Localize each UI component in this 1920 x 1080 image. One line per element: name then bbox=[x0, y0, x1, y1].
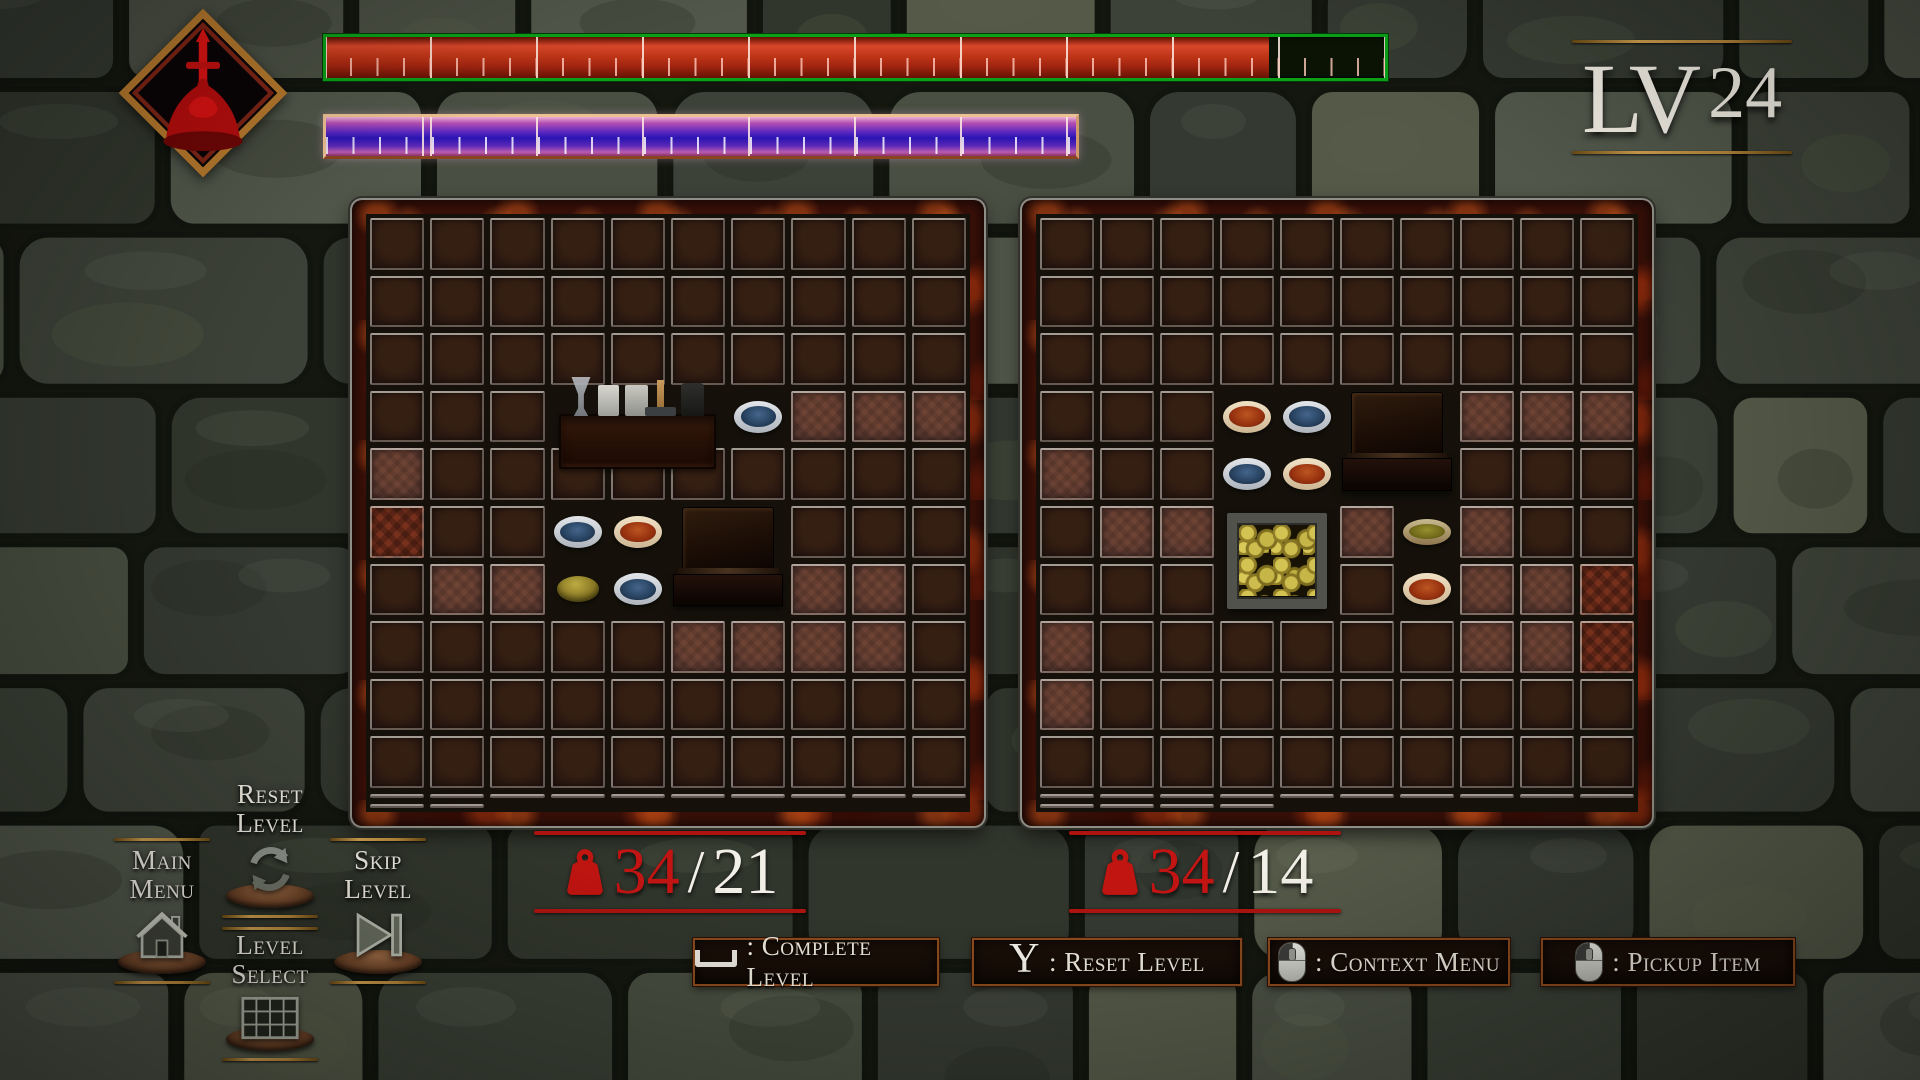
grid-cell[interactable] bbox=[1340, 218, 1394, 270]
grid-cell[interactable] bbox=[611, 736, 665, 788]
grid-cell[interactable] bbox=[1580, 448, 1634, 500]
grid-cell[interactable] bbox=[1040, 218, 1094, 270]
grid-cell[interactable] bbox=[1340, 794, 1394, 798]
skip-level-button[interactable]: Skip Level bbox=[322, 838, 434, 984]
grid-cell[interactable] bbox=[1340, 276, 1394, 328]
grid-cell[interactable] bbox=[1280, 333, 1334, 385]
grid-cell[interactable] bbox=[1580, 679, 1634, 731]
hint-label: : Reset Level bbox=[1049, 947, 1205, 978]
grid-cell[interactable] bbox=[852, 448, 906, 500]
grid-cell[interactable] bbox=[370, 804, 424, 808]
grid-cell[interactable] bbox=[1100, 794, 1154, 798]
grid-cell[interactable] bbox=[1040, 276, 1094, 328]
grid-cell[interactable] bbox=[1520, 391, 1574, 443]
grid-cell[interactable] bbox=[1160, 218, 1214, 270]
grid-cell[interactable] bbox=[1400, 679, 1454, 731]
grid-cell[interactable] bbox=[370, 794, 424, 798]
reset-level-label-line2: Level bbox=[236, 809, 304, 838]
grid-cell[interactable] bbox=[1280, 218, 1334, 270]
grid-cell[interactable] bbox=[1340, 679, 1394, 731]
grid-cell[interactable] bbox=[1160, 564, 1214, 616]
health-bar-minor-ticks bbox=[326, 58, 1385, 76]
grid-cell[interactable] bbox=[490, 506, 544, 558]
grid-cell[interactable] bbox=[912, 391, 966, 443]
grid-cell[interactable] bbox=[1460, 506, 1514, 558]
grid-cell[interactable] bbox=[852, 621, 906, 673]
grid-cell[interactable] bbox=[791, 333, 845, 385]
game-screen: LV 24 34 / 21 34 / 14 bbox=[0, 0, 1920, 1080]
grid-cell[interactable] bbox=[1460, 736, 1514, 788]
hint-complete-level: : Complete Level bbox=[693, 938, 939, 986]
grid-cell[interactable] bbox=[1160, 736, 1214, 788]
grid-cell[interactable] bbox=[1460, 679, 1514, 731]
grid-cell[interactable] bbox=[912, 794, 966, 798]
puzzle-grid-left bbox=[352, 200, 984, 826]
divider-line bbox=[534, 909, 806, 913]
y-key-icon: Y bbox=[1009, 938, 1040, 980]
grid-cell[interactable] bbox=[912, 679, 966, 731]
divider-line bbox=[330, 838, 426, 841]
grid-cell[interactable] bbox=[1160, 391, 1214, 443]
grid-cell[interactable] bbox=[490, 621, 544, 673]
grid-cell[interactable] bbox=[370, 333, 424, 385]
grid-cell[interactable] bbox=[731, 736, 785, 788]
grid-cell[interactable] bbox=[791, 564, 845, 616]
grid-cell[interactable] bbox=[731, 621, 785, 673]
grid-cell[interactable] bbox=[1460, 564, 1514, 616]
grid-cell[interactable] bbox=[370, 448, 424, 500]
hint-context-menu: : Context Menu bbox=[1268, 938, 1510, 986]
grid-cell[interactable] bbox=[791, 679, 845, 731]
level-select-button[interactable]: Level Select bbox=[214, 926, 326, 1061]
grid-cell[interactable] bbox=[1100, 333, 1154, 385]
skip-level-label-line2: Level bbox=[344, 875, 412, 904]
grid-cell[interactable] bbox=[370, 391, 424, 443]
grid-cell[interactable] bbox=[1400, 218, 1454, 270]
grid-cell[interactable] bbox=[1220, 804, 1274, 808]
grid-cell[interactable] bbox=[912, 448, 966, 500]
grid-cell[interactable] bbox=[1040, 736, 1094, 788]
grid-cell[interactable] bbox=[1160, 448, 1214, 500]
grid-cells bbox=[366, 214, 970, 812]
grid-cell[interactable] bbox=[912, 736, 966, 788]
item-chest[interactable] bbox=[1340, 391, 1454, 500]
grid-cell[interactable] bbox=[1160, 679, 1214, 731]
grid-cells bbox=[1036, 214, 1638, 812]
item-plate-red[interactable] bbox=[611, 506, 665, 558]
item-pile-gold[interactable] bbox=[551, 564, 605, 616]
grid-cell[interactable] bbox=[1100, 679, 1154, 731]
grid-cell[interactable] bbox=[611, 218, 665, 270]
grid-cell[interactable] bbox=[1580, 333, 1634, 385]
grid-cell[interactable] bbox=[671, 794, 725, 798]
magic-bar bbox=[323, 114, 1079, 159]
grid-cell[interactable] bbox=[791, 276, 845, 328]
divider-line bbox=[222, 915, 318, 918]
grid-cell[interactable] bbox=[1520, 276, 1574, 328]
grid-cell[interactable] bbox=[731, 679, 785, 731]
mouse-icon bbox=[1575, 942, 1603, 982]
grid-cell[interactable] bbox=[1340, 736, 1394, 788]
grid-cell[interactable] bbox=[912, 218, 966, 270]
item-plate-blue[interactable] bbox=[731, 391, 785, 443]
grid-cell[interactable] bbox=[1580, 621, 1634, 673]
item-plate-red[interactable] bbox=[1400, 564, 1454, 616]
grid-cell[interactable] bbox=[490, 276, 544, 328]
grid-cell[interactable] bbox=[1160, 506, 1214, 558]
grid-cell[interactable] bbox=[1580, 564, 1634, 616]
grid-cell[interactable] bbox=[1100, 506, 1154, 558]
grid-cell[interactable] bbox=[1340, 506, 1394, 558]
grid-cell[interactable] bbox=[611, 794, 665, 798]
grid-cell[interactable] bbox=[852, 218, 906, 270]
grid-cell[interactable] bbox=[1160, 276, 1214, 328]
grid-cell[interactable] bbox=[430, 448, 484, 500]
grid-cell[interactable] bbox=[791, 218, 845, 270]
grid-cell[interactable] bbox=[1040, 621, 1094, 673]
grid-cell[interactable] bbox=[1040, 804, 1094, 808]
grid-cell[interactable] bbox=[1100, 448, 1154, 500]
divider-line bbox=[114, 981, 210, 984]
reset-arrows-icon bbox=[241, 840, 299, 898]
grid-cell[interactable] bbox=[551, 794, 605, 798]
grid-cell[interactable] bbox=[551, 276, 605, 328]
grid-cell[interactable] bbox=[370, 218, 424, 270]
grid-cell[interactable] bbox=[1460, 621, 1514, 673]
item-pile-gold-bowl[interactable] bbox=[1400, 506, 1454, 558]
grid-cell[interactable] bbox=[490, 679, 544, 731]
grid-cell[interactable] bbox=[490, 736, 544, 788]
grid-cell[interactable] bbox=[1580, 506, 1634, 558]
grid-cell[interactable] bbox=[1280, 794, 1334, 798]
grid-cell[interactable] bbox=[1040, 679, 1094, 731]
grid-cell[interactable] bbox=[1520, 621, 1574, 673]
grid-cell[interactable] bbox=[671, 218, 725, 270]
item-chest[interactable] bbox=[671, 506, 785, 615]
grid-cell[interactable] bbox=[490, 448, 544, 500]
grid-cell[interactable] bbox=[1580, 736, 1634, 788]
grid-cell[interactable] bbox=[430, 506, 484, 558]
grid-cell[interactable] bbox=[1280, 679, 1334, 731]
grid-cell[interactable] bbox=[551, 621, 605, 673]
level-select-label-line2: Select bbox=[231, 960, 308, 989]
item-plate-red[interactable] bbox=[1220, 391, 1274, 443]
magic-bar-minor-ticks bbox=[326, 137, 1076, 154]
grid-cell[interactable] bbox=[731, 276, 785, 328]
grid-cell[interactable] bbox=[1280, 621, 1334, 673]
grid-cell[interactable] bbox=[912, 564, 966, 616]
divider-line bbox=[1069, 909, 1341, 913]
hint-label: : Complete Level bbox=[746, 931, 937, 993]
grid-cell[interactable] bbox=[1280, 736, 1334, 788]
grid-cell[interactable] bbox=[551, 736, 605, 788]
grid-cell[interactable] bbox=[430, 218, 484, 270]
grid-cell[interactable] bbox=[1400, 794, 1454, 798]
grid-cell[interactable] bbox=[852, 333, 906, 385]
grid-cell[interactable] bbox=[1460, 794, 1514, 798]
grid-cell[interactable] bbox=[852, 506, 906, 558]
grid-cell[interactable] bbox=[912, 276, 966, 328]
grid-cell[interactable] bbox=[731, 794, 785, 798]
grid-cell[interactable] bbox=[912, 621, 966, 673]
grid-cell[interactable] bbox=[1220, 218, 1274, 270]
hint-reset-level: Y : Reset Level bbox=[972, 938, 1242, 986]
grid-cell[interactable] bbox=[1220, 276, 1274, 328]
grid-cell[interactable] bbox=[791, 448, 845, 500]
grid-cell[interactable] bbox=[671, 621, 725, 673]
grid-cell[interactable] bbox=[852, 794, 906, 798]
grid-cell[interactable] bbox=[852, 679, 906, 731]
grid-cell[interactable] bbox=[791, 736, 845, 788]
divider-line bbox=[222, 1058, 318, 1061]
grid-icon bbox=[240, 995, 300, 1041]
grid-cell[interactable] bbox=[1100, 621, 1154, 673]
level-select-label-line1: Level bbox=[231, 931, 308, 960]
divider-line bbox=[330, 981, 426, 984]
grid-cell[interactable] bbox=[430, 391, 484, 443]
grid-cell[interactable] bbox=[430, 276, 484, 328]
grid-cell[interactable] bbox=[1100, 218, 1154, 270]
main-menu-button[interactable]: Main Menu bbox=[106, 838, 218, 984]
grid-cell[interactable] bbox=[430, 804, 484, 808]
weight-counter-left: 34 / 21 bbox=[534, 831, 806, 913]
grid-cell[interactable] bbox=[1460, 391, 1514, 443]
weight-separator: / bbox=[1223, 837, 1240, 907]
grid-cell[interactable] bbox=[430, 679, 484, 731]
grid-cell[interactable] bbox=[490, 333, 544, 385]
grid-cell[interactable] bbox=[1520, 218, 1574, 270]
grid-cell[interactable] bbox=[1280, 276, 1334, 328]
grid-cell[interactable] bbox=[1520, 333, 1574, 385]
grid-cell[interactable] bbox=[1580, 391, 1634, 443]
grid-cell[interactable] bbox=[370, 621, 424, 673]
grid-cell[interactable] bbox=[1580, 276, 1634, 328]
spacebar-icon bbox=[695, 950, 737, 967]
grid-cell[interactable] bbox=[852, 564, 906, 616]
grid-cell[interactable] bbox=[430, 794, 484, 798]
item-plate-blue[interactable] bbox=[611, 564, 665, 616]
mouse-icon bbox=[1278, 942, 1306, 982]
grid-cell[interactable] bbox=[731, 333, 785, 385]
grid-cell[interactable] bbox=[1040, 448, 1094, 500]
grid-cell[interactable] bbox=[1520, 679, 1574, 731]
grid-cell[interactable] bbox=[1040, 794, 1094, 798]
grid-cell[interactable] bbox=[671, 736, 725, 788]
grid-cell[interactable] bbox=[551, 679, 605, 731]
grid-cell[interactable] bbox=[1520, 736, 1574, 788]
grid-cell[interactable] bbox=[430, 736, 484, 788]
grid-cell[interactable] bbox=[1460, 448, 1514, 500]
grid-cell[interactable] bbox=[551, 218, 605, 270]
grid-cell[interactable] bbox=[1040, 333, 1094, 385]
grid-cell[interactable] bbox=[1040, 506, 1094, 558]
grid-cell[interactable] bbox=[1400, 276, 1454, 328]
grid-cell[interactable] bbox=[791, 391, 845, 443]
weight-icon bbox=[1097, 846, 1143, 898]
grid-cell[interactable] bbox=[1400, 333, 1454, 385]
weight-icon bbox=[562, 846, 608, 898]
grid-cell[interactable] bbox=[370, 564, 424, 616]
puzzle-grid-right bbox=[1022, 200, 1652, 826]
hint-pickup-item: : Pickup Item bbox=[1541, 938, 1795, 986]
grid-cell[interactable] bbox=[611, 679, 665, 731]
grid-cell[interactable] bbox=[852, 276, 906, 328]
weight-counter-right: 34 / 14 bbox=[1069, 831, 1341, 913]
hint-label: : Context Menu bbox=[1315, 947, 1500, 978]
grid-cell[interactable] bbox=[1520, 564, 1574, 616]
health-bar bbox=[323, 34, 1388, 81]
grid-cell[interactable] bbox=[1160, 804, 1214, 808]
grid-cell[interactable] bbox=[370, 736, 424, 788]
main-menu-label-line2: Menu bbox=[129, 875, 194, 904]
grid-cell[interactable] bbox=[912, 506, 966, 558]
grid-cell[interactable] bbox=[1220, 621, 1274, 673]
grid-cell[interactable] bbox=[370, 506, 424, 558]
level-value: 24 bbox=[1708, 41, 1782, 145]
grid-cell[interactable] bbox=[1460, 276, 1514, 328]
grid-cell[interactable] bbox=[490, 391, 544, 443]
grid-cell[interactable] bbox=[731, 218, 785, 270]
item-gold-crate[interactable] bbox=[1220, 506, 1334, 615]
grid-cell[interactable] bbox=[1220, 794, 1274, 798]
grid-cell[interactable] bbox=[1520, 794, 1574, 798]
grid-cell[interactable] bbox=[1040, 564, 1094, 616]
grid-cell[interactable] bbox=[1220, 736, 1274, 788]
grid-cell[interactable] bbox=[1100, 736, 1154, 788]
home-icon bbox=[133, 906, 191, 964]
grid-cell[interactable] bbox=[611, 621, 665, 673]
item-plate-blue[interactable] bbox=[551, 506, 605, 558]
grid-cell[interactable] bbox=[1220, 679, 1274, 731]
grid-cell[interactable] bbox=[1220, 333, 1274, 385]
grid-cell[interactable] bbox=[852, 391, 906, 443]
grid-cell[interactable] bbox=[1160, 794, 1214, 798]
grid-cell[interactable] bbox=[490, 794, 544, 798]
level-label: LV bbox=[1582, 47, 1696, 151]
grid-cell[interactable] bbox=[1520, 506, 1574, 558]
grid-cell[interactable] bbox=[370, 276, 424, 328]
reset-level-label-line1: Reset bbox=[236, 780, 304, 809]
grid-cell[interactable] bbox=[1100, 391, 1154, 443]
grid-cell[interactable] bbox=[1100, 276, 1154, 328]
grid-cell[interactable] bbox=[370, 679, 424, 731]
skip-level-label-line1: Skip bbox=[344, 846, 412, 875]
weight-limit: 14 bbox=[1247, 837, 1313, 907]
grid-cell[interactable] bbox=[671, 276, 725, 328]
weight-limit: 21 bbox=[712, 837, 778, 907]
item-plate-red[interactable] bbox=[1280, 448, 1334, 500]
divider-line bbox=[114, 838, 210, 841]
grid-cell[interactable] bbox=[1520, 448, 1574, 500]
grid-cell[interactable] bbox=[430, 621, 484, 673]
grid-cell[interactable] bbox=[430, 564, 484, 616]
grid-cell[interactable] bbox=[1340, 621, 1394, 673]
grid-cell[interactable] bbox=[731, 448, 785, 500]
main-menu-label-line1: Main bbox=[129, 846, 194, 875]
grid-cell[interactable] bbox=[490, 564, 544, 616]
grid-cell[interactable] bbox=[1460, 218, 1514, 270]
skip-icon bbox=[349, 906, 407, 964]
grid-cell[interactable] bbox=[1040, 391, 1094, 443]
grid-cell[interactable] bbox=[791, 794, 845, 798]
grid-cell[interactable] bbox=[912, 333, 966, 385]
grid-cell[interactable] bbox=[1400, 621, 1454, 673]
current-weight: 34 bbox=[1149, 837, 1215, 907]
grid-cell[interactable] bbox=[791, 621, 845, 673]
grid-cell[interactable] bbox=[1160, 333, 1214, 385]
hint-label: : Pickup Item bbox=[1612, 947, 1761, 978]
grid-cell[interactable] bbox=[1460, 333, 1514, 385]
reset-level-button[interactable]: Reset Level bbox=[214, 775, 326, 930]
grid-cell[interactable] bbox=[1100, 804, 1154, 808]
item-plate-blue[interactable] bbox=[1280, 391, 1334, 443]
item-toolbox[interactable] bbox=[551, 391, 726, 443]
level-indicator: LV 24 bbox=[1572, 40, 1792, 154]
grid-cell[interactable] bbox=[1400, 736, 1454, 788]
grid-cell[interactable] bbox=[1580, 794, 1634, 798]
grid-cell[interactable] bbox=[1580, 218, 1634, 270]
grid-cell[interactable] bbox=[611, 276, 665, 328]
bonfire-emblem-icon bbox=[118, 8, 288, 178]
grid-cell[interactable] bbox=[791, 506, 845, 558]
grid-cell[interactable] bbox=[1340, 564, 1394, 616]
item-plate-blue[interactable] bbox=[1220, 448, 1274, 500]
grid-cell[interactable] bbox=[671, 679, 725, 731]
grid-cell[interactable] bbox=[1160, 621, 1214, 673]
grid-cell[interactable] bbox=[430, 333, 484, 385]
weight-separator: / bbox=[688, 837, 705, 907]
grid-cell[interactable] bbox=[1340, 333, 1394, 385]
grid-cell[interactable] bbox=[1100, 564, 1154, 616]
grid-cell[interactable] bbox=[490, 218, 544, 270]
current-weight: 34 bbox=[614, 837, 680, 907]
grid-cell[interactable] bbox=[852, 736, 906, 788]
game-logo bbox=[118, 8, 288, 178]
